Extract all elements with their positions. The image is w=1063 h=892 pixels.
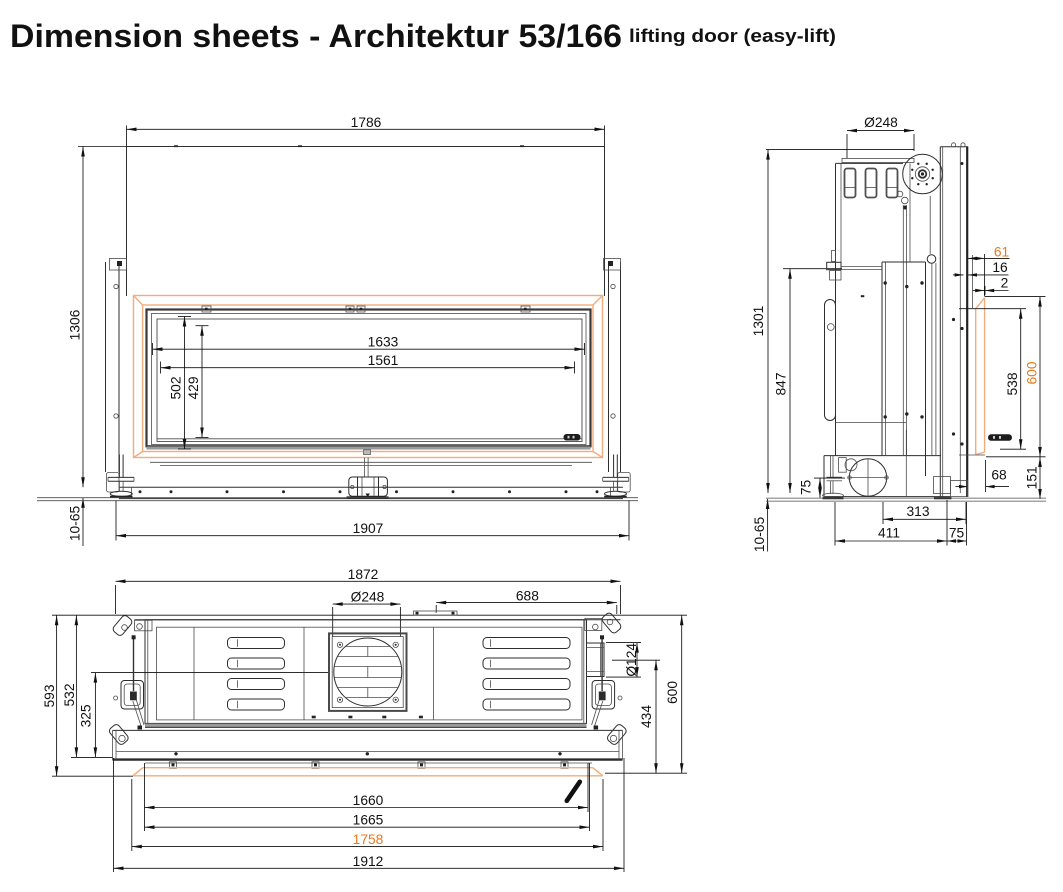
svg-text:325: 325 xyxy=(79,704,94,727)
svg-text:2: 2 xyxy=(1001,276,1009,291)
svg-text:68: 68 xyxy=(991,467,1007,482)
svg-text:532: 532 xyxy=(62,683,77,706)
svg-text:600: 600 xyxy=(1025,361,1040,384)
svg-text:151: 151 xyxy=(1025,466,1040,489)
svg-text:1758: 1758 xyxy=(353,832,384,847)
svg-text:1306: 1306 xyxy=(68,309,83,340)
svg-text:429: 429 xyxy=(186,376,201,399)
svg-text:847: 847 xyxy=(774,372,789,395)
svg-text:1872: 1872 xyxy=(348,567,379,582)
svg-text:538: 538 xyxy=(1005,372,1020,395)
svg-text:1786: 1786 xyxy=(351,115,382,130)
svg-text:593: 593 xyxy=(42,684,57,707)
svg-text:Ø248: Ø248 xyxy=(351,590,385,605)
svg-text:1665: 1665 xyxy=(353,813,384,828)
svg-text:434: 434 xyxy=(639,705,654,728)
svg-text:16: 16 xyxy=(992,260,1008,275)
svg-text:1633: 1633 xyxy=(368,335,399,350)
svg-text:1561: 1561 xyxy=(368,353,399,368)
svg-text:75: 75 xyxy=(799,480,814,496)
svg-text:502: 502 xyxy=(169,376,184,399)
svg-text:600: 600 xyxy=(665,681,680,704)
svg-text:1301: 1301 xyxy=(751,306,766,337)
svg-text:411: 411 xyxy=(878,526,900,541)
svg-text:1907: 1907 xyxy=(353,521,384,536)
svg-text:75: 75 xyxy=(949,526,965,541)
svg-text:1660: 1660 xyxy=(353,793,384,808)
svg-text:313: 313 xyxy=(906,504,929,519)
svg-text:lifting door (easy-lift): lifting door (easy-lift) xyxy=(629,25,836,46)
svg-text:688: 688 xyxy=(516,588,539,603)
svg-text:Ø248: Ø248 xyxy=(864,115,898,130)
svg-text:61: 61 xyxy=(994,244,1009,259)
svg-text:10-65: 10-65 xyxy=(752,517,767,553)
svg-text:Ø124: Ø124 xyxy=(624,643,639,677)
svg-text:Dimension sheets - Architektur: Dimension sheets - Architektur 53/166 xyxy=(10,18,622,54)
svg-text:10-65: 10-65 xyxy=(68,506,83,542)
svg-text:1912: 1912 xyxy=(353,854,384,869)
